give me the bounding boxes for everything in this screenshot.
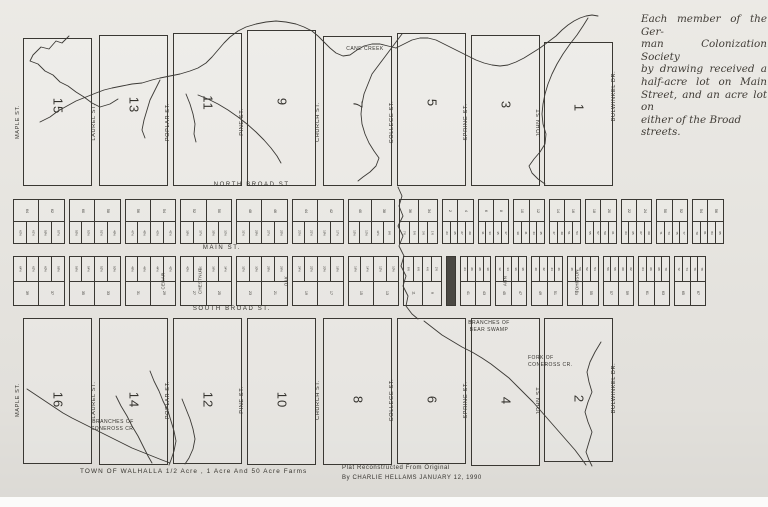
- main-facing-lots: 55575961: [586, 221, 616, 243]
- lot-cell: 52: [582, 257, 590, 281]
- lot-cell: 4½: [422, 257, 431, 281]
- lot-number: 67: [639, 231, 642, 234]
- broad-facing-lots: 4547: [496, 281, 526, 306]
- lot-number: 38: [521, 267, 524, 270]
- lot-number: 58: [613, 267, 616, 270]
- upper-strip-block-5: 484631½29½27½25½: [236, 199, 288, 244]
- lot-cell: 24: [461, 257, 468, 281]
- lot-cell: 50: [206, 200, 231, 221]
- lot-number: 4½: [426, 267, 429, 271]
- block-1: 1: [544, 42, 613, 186]
- lot-number: 26: [470, 267, 473, 270]
- lot-number: 56: [605, 267, 608, 270]
- street-south-bulwinkel-dr-: BULWINKEL DR.: [611, 363, 617, 414]
- fork-coneross-line2: CONEROSS CR.: [528, 362, 594, 369]
- lot-cell: 56½: [70, 257, 82, 281]
- plat-credit: Plat Reconstructed From Original By CHAR…: [342, 464, 482, 483]
- main-facing-lots: 79818385: [693, 221, 723, 243]
- lot-number: 21½: [310, 230, 313, 236]
- broad-facing-lots: 2224: [622, 200, 652, 221]
- lot-cell: 50½: [107, 257, 120, 281]
- lot-cell: 16: [564, 200, 579, 221]
- lot-number: 21: [273, 291, 276, 295]
- lot-number: 55½: [74, 230, 77, 236]
- upper-strip-block-1: 646263½61½59½57½: [13, 199, 65, 244]
- lot-number: 57: [609, 291, 612, 295]
- upper-strip-block-15: 505271737577: [656, 199, 688, 244]
- lot-number: 45: [539, 231, 542, 234]
- lot-number: 73: [667, 231, 670, 234]
- lot-number: 59: [624, 291, 627, 295]
- lot-cell: 8: [493, 200, 508, 221]
- lot-cell: 69: [644, 222, 652, 243]
- lot-number: 10½: [391, 266, 394, 272]
- lot-number: 28½: [267, 266, 270, 272]
- street-north-poplar-st-: POPLAR ST.: [165, 103, 171, 141]
- lot-number: 33: [106, 291, 109, 295]
- lot-cell: 15½: [349, 222, 360, 243]
- lot-number: 44: [303, 209, 306, 213]
- dense-cell: 16: [453, 293, 455, 305]
- lot-number: 49: [538, 291, 541, 295]
- main-facing-lots: 64½62½60½58½: [14, 257, 64, 281]
- lot-cell: 33: [485, 222, 493, 243]
- lot-cell: 51: [564, 222, 572, 243]
- margin-note-line: by drawing received a: [641, 63, 767, 76]
- lot-number: 53½: [87, 230, 90, 236]
- broad-facing-lots: 4143: [461, 281, 491, 306]
- lot-number: 6½: [416, 267, 419, 271]
- lot-number: 54: [161, 209, 164, 213]
- lot-number: 31½: [241, 230, 244, 236]
- lot-number: 16½: [353, 266, 356, 272]
- lot-cell: 70: [661, 257, 669, 281]
- street-south-maple-st-: MAPLE ST.: [15, 383, 21, 417]
- lot-cell: 55: [586, 222, 593, 243]
- lot-cell: 57: [593, 222, 601, 243]
- lot-cell: 65: [675, 282, 689, 306]
- lot-number: 60: [80, 209, 83, 213]
- lot-cell: 50: [657, 200, 671, 221]
- bear-swamp-label: BRANCHES OF BEAR SWAMP: [456, 320, 522, 334]
- lot-cell: 61½: [26, 222, 39, 243]
- lower-strip-block-12: 404244464951: [531, 256, 563, 306]
- lot-number: 19½: [322, 230, 325, 236]
- block-4-number: 4: [498, 397, 513, 405]
- upper-strip-block-6: 444223½21½19½17½: [292, 199, 344, 244]
- lot-number: 57: [595, 231, 598, 234]
- lot-number: 49½: [112, 230, 115, 236]
- lot-number: 57½: [56, 230, 59, 236]
- main-facing-lots: 32343638: [496, 257, 526, 281]
- lot-cell: 37: [38, 282, 63, 306]
- lot-cell: 62: [626, 257, 634, 281]
- lot-number: 29: [468, 231, 471, 234]
- lot-number: 16: [453, 297, 455, 300]
- lot-number: 60: [621, 267, 624, 270]
- lot-number: 51: [567, 231, 570, 234]
- lot-cell: 31: [126, 282, 150, 306]
- broad-facing-lots: 4038: [349, 200, 395, 221]
- street-south-church-st-: CHURCH ST.: [315, 380, 321, 420]
- lot-cell: 61: [608, 222, 616, 243]
- block-12-number: 12: [200, 391, 215, 407]
- lot-number: 52: [678, 209, 681, 213]
- street-north-bulwinkel-dr-: BULWINKEL DR.: [611, 71, 617, 122]
- lot-number: 39: [516, 231, 519, 234]
- lot-cell: 64: [639, 257, 646, 281]
- lot-number: 37½: [198, 230, 201, 236]
- lot-cell: 19½: [317, 222, 330, 243]
- block-8: 8: [323, 318, 392, 465]
- lot-number: 12½: [378, 266, 381, 272]
- lot-cell: 52: [672, 200, 687, 221]
- lot-number: 36: [408, 209, 411, 213]
- lot-cell: 14½: [360, 257, 373, 281]
- main-facing-lots: 7½5½3½1½: [400, 221, 436, 243]
- lot-cell: 23½: [293, 222, 305, 243]
- lot-cell: 22: [622, 200, 636, 221]
- lot-cell: 54: [693, 200, 707, 221]
- lot-cell: 51½: [94, 222, 107, 243]
- lot-cell: 6½: [413, 257, 422, 281]
- lot-cell: 5½: [409, 222, 418, 243]
- lot-cell: 35: [70, 282, 94, 306]
- lot-cell: 45½: [137, 222, 150, 243]
- lot-cell: 37½: [193, 222, 206, 243]
- dense-cell: 4: [453, 257, 455, 269]
- lot-number: 40½: [186, 266, 189, 272]
- block-3-number: 3: [498, 100, 513, 108]
- lot-cell: 63½: [14, 222, 26, 243]
- lot-number: 22: [627, 209, 630, 213]
- lot-cell: 62½: [26, 257, 39, 281]
- broad-facing-lots: 4951: [532, 281, 562, 306]
- lot-number: 43½: [155, 230, 158, 236]
- margin-note-line: Street, and an acre lot on: [641, 89, 767, 114]
- lot-number: 18: [591, 209, 594, 213]
- block-14: 14: [99, 318, 168, 465]
- block-12: 12: [173, 318, 242, 464]
- lot-number: 35: [80, 291, 83, 295]
- street-mid-oak: OAK: [284, 276, 289, 286]
- lot-cell: 59: [618, 282, 633, 306]
- lot-number: 41: [466, 291, 469, 295]
- lot-cell: 53: [572, 222, 580, 243]
- lot-number: 36½: [211, 266, 214, 272]
- lot-number: 56: [714, 209, 717, 213]
- lot-cell: 43: [529, 222, 537, 243]
- main-facing-lots: 31333537: [479, 221, 509, 243]
- main-facing-lots: 15½13½11½9½: [349, 221, 395, 243]
- lot-cell: 17: [317, 282, 342, 306]
- margin-note: Each member of the Ger- man Colonization…: [641, 13, 767, 139]
- lot-number: 65: [681, 291, 684, 295]
- block-7-number: 7: [350, 101, 365, 109]
- dense-cell: 8: [453, 269, 455, 281]
- broad-facing-lots: 2725: [181, 281, 231, 306]
- bear-swamp-line1: BRANCHES OF: [456, 320, 522, 327]
- credit-line2: By CHARLIE HELLAMS JANUARY 12, 1990: [342, 474, 482, 484]
- upper-strip-block-11: 101239414345: [513, 199, 545, 244]
- lower-strip-block-14: 565860625759: [603, 256, 635, 306]
- lot-cell: 85: [715, 222, 723, 243]
- lot-cell: 35½: [206, 222, 219, 243]
- lot-cell: 54: [150, 200, 175, 221]
- lot-cell: 33: [94, 282, 119, 306]
- lot-number: 55: [589, 291, 592, 295]
- broad-facing-lots: 3129: [126, 281, 176, 306]
- main-facing-lots: 24262830: [461, 257, 491, 281]
- lot-cell: 32½: [237, 257, 249, 281]
- bear-swamp-line2: BEAR SWAMP: [456, 327, 522, 334]
- margin-note-line: half-acre lot on Main: [641, 76, 767, 89]
- lot-cell: 43: [475, 282, 490, 306]
- lot-number: 50½: [112, 266, 115, 272]
- lot-cell: 6: [479, 200, 493, 221]
- lot-number: 17½: [335, 230, 338, 236]
- lot-number: 30½: [254, 266, 257, 272]
- block-15: 15: [23, 38, 92, 186]
- lot-number: 20: [607, 209, 610, 213]
- lot-cell: 59½: [38, 222, 51, 243]
- main-facing-lots: 64666870: [639, 257, 669, 281]
- lot-cell: 46: [554, 257, 562, 281]
- street-south-john-st-: JOHN ST.: [536, 385, 542, 415]
- street-north-maple-st-: MAPLE ST.: [15, 105, 21, 139]
- branches-coneross-label: BRANCHES OF CONEROSS CR.: [80, 419, 146, 433]
- lot-cell: 26: [467, 257, 475, 281]
- credit-line1: Plat Reconstructed From Original: [342, 464, 482, 474]
- lot-cell: 54: [590, 257, 598, 281]
- street-mid-ann: ANN: [503, 276, 508, 286]
- lot-cell: 59: [600, 222, 608, 243]
- lot-cell: 77: [679, 222, 687, 243]
- lot-number: 17: [329, 291, 332, 295]
- lot-cell: 10: [514, 200, 528, 221]
- main-facing-lots: 23½21½19½17½: [293, 221, 343, 243]
- lot-cell: 45: [536, 222, 544, 243]
- lot-cell: 64½: [14, 257, 26, 281]
- lot-number: 44½: [155, 266, 158, 272]
- main-facing-lots: 39½37½35½33½: [181, 221, 231, 243]
- lot-number: 4: [453, 262, 455, 264]
- lot-number: 32: [498, 267, 501, 270]
- street-north-pine-st-: PINE ST.: [239, 108, 245, 136]
- lot-number: 40: [534, 267, 537, 270]
- lot-number: 51½: [99, 230, 102, 236]
- broad-facing-lots: 119: [404, 281, 440, 306]
- lot-number: 10: [520, 209, 523, 213]
- broad-facing-lots: 1416: [550, 200, 580, 221]
- lot-number: 27: [192, 291, 195, 295]
- main-street-label: MAIN ST.: [180, 245, 264, 251]
- lot-cell: 39: [14, 282, 38, 306]
- lot-cell: 44: [293, 200, 317, 221]
- lot-cell: 18: [586, 200, 600, 221]
- lot-number: 42: [542, 267, 545, 270]
- margin-note-line: Each member of the Ger-: [641, 13, 767, 38]
- lot-cell: 25: [450, 222, 458, 243]
- lot-number: 35: [496, 231, 499, 234]
- block-7: 7: [323, 36, 392, 186]
- block-2: 2: [544, 318, 613, 462]
- street-north-spring-st-: SPRING ST.: [463, 103, 469, 140]
- lot-cell: 15: [349, 282, 373, 306]
- lot-cell: 29½: [249, 222, 262, 243]
- block-16-number: 16: [50, 391, 65, 407]
- street-south-spring-st-: SPRING ST.: [463, 381, 469, 418]
- upper-strip-block-9: 2423252729: [442, 199, 474, 244]
- lot-number: 58½: [56, 266, 59, 272]
- lot-number: 54: [593, 267, 596, 270]
- lot-cell: 60: [618, 257, 626, 281]
- main-facing-lots: 56½54½52½50½: [70, 257, 120, 281]
- lot-cell: 42: [539, 257, 547, 281]
- broad-facing-lots: 6163: [639, 281, 669, 306]
- street-mid-chestnut: CHESTNUT: [198, 268, 203, 294]
- lot-cell: 83: [707, 222, 715, 243]
- lot-cell: 60½: [38, 257, 51, 281]
- lot-number: 45: [502, 291, 505, 295]
- lot-number: 2: [448, 210, 451, 212]
- lot-cell: 22½: [304, 257, 317, 281]
- lower-strip-block-6: 24½22½20½18½1917: [292, 256, 344, 306]
- lot-number: 65: [631, 231, 634, 234]
- lot-number: 77: [682, 231, 685, 234]
- lower-strip-block-3: 48½46½44½42½3129: [125, 256, 177, 306]
- block-11-number: 11: [200, 96, 215, 112]
- street-north-church-st-: CHURCH ST.: [315, 102, 321, 142]
- lot-number: 61: [611, 231, 614, 234]
- lot-cell: 24½: [293, 257, 305, 281]
- lot-cell: 49½: [107, 222, 120, 243]
- south-broad-street-label: SOUTH BROAD ST.: [168, 306, 296, 312]
- lot-number: 52½: [99, 266, 102, 272]
- street-north-john-st-: JOHN ST.: [536, 107, 542, 137]
- lot-number: 46½: [143, 266, 146, 272]
- lot-cell: 53½: [81, 222, 94, 243]
- north-broad-main-lot-strip: 646263½61½59½57½605855½53½51½49½565447½4…: [13, 199, 630, 244]
- margin-note-line: man Colonization Society: [641, 38, 767, 63]
- lot-number: 46: [557, 267, 560, 270]
- lot-number: 66: [649, 267, 652, 270]
- upper-strip-block-14: 222463656769: [621, 199, 653, 244]
- lot-number: 44: [549, 267, 552, 270]
- broad-facing-lots: 3634: [400, 200, 436, 221]
- lot-number: 59: [603, 231, 606, 234]
- lot-number: 49: [560, 231, 563, 234]
- block-10: 10: [247, 318, 316, 465]
- lower-strip-block-1: 64½62½60½58½3937: [13, 256, 65, 306]
- lot-cell: 56: [126, 200, 150, 221]
- block-8-number: 8: [350, 396, 365, 404]
- lot-cell: 52½: [94, 257, 107, 281]
- lot-cell: 63: [622, 222, 629, 243]
- lot-cell: 12½: [373, 257, 386, 281]
- lower-strip-block-2: 56½54½52½50½3533: [69, 256, 121, 306]
- lot-number: 69: [646, 231, 649, 234]
- lot-number: 34½: [224, 266, 227, 272]
- lot-number: 25½: [279, 230, 282, 236]
- lot-cell: 39½: [181, 222, 193, 243]
- lot-cell: 57½: [51, 222, 64, 243]
- lower-strip-block-7: 16½14½12½10½1513: [348, 256, 400, 306]
- lot-number: 14: [556, 209, 559, 213]
- lot-cell: 7½: [400, 222, 408, 243]
- broad-facing-lots: 2321: [237, 281, 287, 306]
- lot-cell: 58½: [51, 257, 64, 281]
- lot-cell: 49: [557, 222, 565, 243]
- lot-cell: 10½: [386, 257, 399, 281]
- lot-number: 41: [524, 231, 527, 234]
- lot-cell: 44: [547, 257, 555, 281]
- lot-cell: 75: [672, 222, 680, 243]
- lot-number: 47: [517, 291, 520, 295]
- block-11: 11: [173, 33, 242, 186]
- lot-number: 26½: [279, 266, 282, 272]
- lot-cell: 40½: [181, 257, 193, 281]
- lot-cell: 41: [521, 222, 529, 243]
- block-3: 3: [471, 35, 540, 186]
- lot-number: 46: [273, 209, 276, 213]
- lot-cell: 3½: [418, 222, 427, 243]
- block-5: 5: [397, 33, 466, 186]
- lot-number: 31: [136, 291, 139, 295]
- broad-facing-lots: 4846: [237, 200, 287, 221]
- lot-number: 61½: [31, 230, 34, 236]
- lot-cell: 48½: [126, 257, 138, 281]
- lot-number: 23½: [297, 230, 300, 236]
- lot-number: 25: [217, 291, 220, 295]
- lot-number: 63½: [18, 230, 21, 236]
- lot-number: 9½: [388, 230, 391, 234]
- lot-cell: 1½: [427, 222, 436, 243]
- lot-cell: 30½: [249, 257, 262, 281]
- lot-number: 39: [24, 291, 27, 295]
- lot-number: 39½: [186, 230, 189, 236]
- lot-number: 29½: [254, 230, 257, 236]
- main-facing-lots: 32½30½28½26½: [237, 257, 287, 281]
- lot-cell: 67: [690, 282, 705, 306]
- lot-cell: 41½: [163, 222, 176, 243]
- lot-cell: 20½: [317, 257, 330, 281]
- upper-strip-block-8: 36347½5½3½1½: [399, 199, 437, 244]
- lot-number: 70: [664, 267, 667, 270]
- lot-cell: 9: [422, 282, 441, 306]
- lot-cell: 64: [14, 200, 38, 221]
- main-facing-lots: 63656769: [622, 221, 652, 243]
- broad-facing-lots: 5052: [657, 200, 687, 221]
- upper-strip-block-16: 545679818385: [692, 199, 724, 244]
- lot-number: 52: [192, 209, 195, 213]
- lot-cell: 18½: [330, 257, 343, 281]
- lot-number: 35½: [211, 230, 214, 236]
- lot-number: 12: [535, 209, 538, 213]
- main-facing-lots: 40½38½36½34½: [181, 257, 231, 281]
- lot-cell: 2½: [431, 257, 440, 281]
- lot-number: 14½: [366, 266, 369, 272]
- lower-strip-block-10: 242628304143: [460, 256, 492, 306]
- main-facing-lots: 31½29½27½25½: [237, 221, 287, 243]
- lower-strip-block-4: 40½38½36½34½2725: [180, 256, 232, 306]
- broad-facing-lots: 6567: [675, 281, 705, 306]
- lot-cell: 42: [317, 200, 342, 221]
- lot-number: 68: [657, 267, 660, 270]
- lot-cell: 33½: [218, 222, 231, 243]
- lot-number: 23: [445, 231, 448, 234]
- lot-number: 52: [585, 267, 588, 270]
